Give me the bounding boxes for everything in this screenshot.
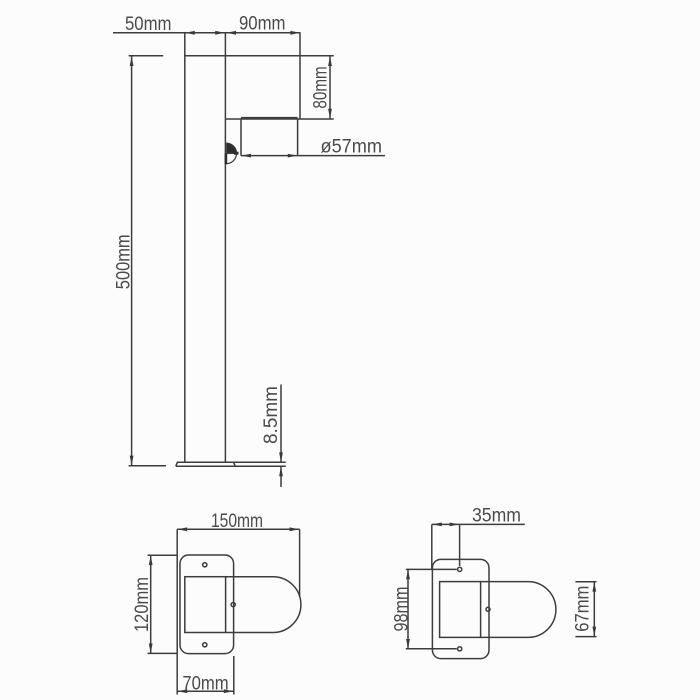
svg-text:67mm: 67mm <box>573 586 594 632</box>
svg-text:70mm: 70mm <box>182 674 228 695</box>
svg-text:98mm: 98mm <box>392 587 413 632</box>
svg-text:ø57mm: ø57mm <box>321 137 383 158</box>
svg-text:35mm: 35mm <box>472 506 521 527</box>
svg-text:500mm: 500mm <box>113 234 134 289</box>
svg-text:90mm: 90mm <box>239 14 286 35</box>
svg-text:50mm: 50mm <box>125 14 172 35</box>
svg-text:8.5mm: 8.5mm <box>261 386 282 444</box>
svg-text:120mm: 120mm <box>132 577 153 632</box>
svg-text:80mm: 80mm <box>311 66 332 108</box>
svg-text:150mm: 150mm <box>211 511 263 532</box>
